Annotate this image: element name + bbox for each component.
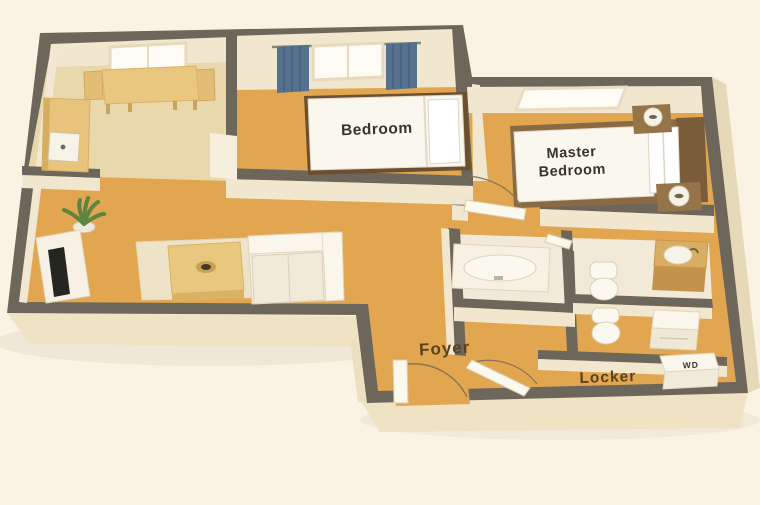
toilet-tank <box>590 262 617 279</box>
sofa-cushion-2 <box>288 252 324 302</box>
bathtub-tap <box>494 276 503 280</box>
sofa-cushion-1 <box>252 254 290 304</box>
lamp-bottom-detail <box>675 194 684 198</box>
toilet-bowl <box>590 278 618 300</box>
floor-plan-image: Bedroom Master Bedroom <box>0 0 760 505</box>
sink-tap <box>61 145 66 150</box>
bedroom-label: Bedroom <box>341 120 413 139</box>
vanity-front <box>652 266 706 292</box>
bottom-left-outer-face <box>7 313 362 347</box>
toilet-2-bowl <box>592 322 620 344</box>
entry-door <box>393 360 408 403</box>
toilet-2-tank <box>592 308 619 323</box>
dining-table <box>102 66 199 104</box>
sofa-arm <box>322 232 344 301</box>
bathroom <box>452 244 550 292</box>
master-label-line2: Bedroom <box>538 162 606 181</box>
floor-plan-svg: Bedroom Master Bedroom <box>0 0 760 505</box>
cabinet-top <box>652 310 700 330</box>
bedroom: Bedroom <box>304 92 471 175</box>
master-window <box>516 87 626 110</box>
washer-dryer: WD <box>660 353 719 389</box>
washer-dryer-front <box>663 369 719 389</box>
table-bowl-center <box>201 264 211 270</box>
vanity-sink <box>664 246 692 264</box>
dining-chair-left <box>84 71 103 100</box>
bed-pillow <box>428 99 460 164</box>
washer-dryer-label: WD <box>683 360 700 371</box>
curtain-left <box>277 45 309 93</box>
sofa <box>248 232 344 304</box>
lamp-top-detail <box>649 115 657 119</box>
master-label-line1: Master <box>546 144 596 162</box>
foyer-label: Foyer <box>419 338 471 360</box>
dining-opening <box>210 133 237 180</box>
cabinet-handle <box>660 338 688 339</box>
locker-label: Locker <box>579 368 636 387</box>
dining-bedroom-wall <box>226 34 237 136</box>
